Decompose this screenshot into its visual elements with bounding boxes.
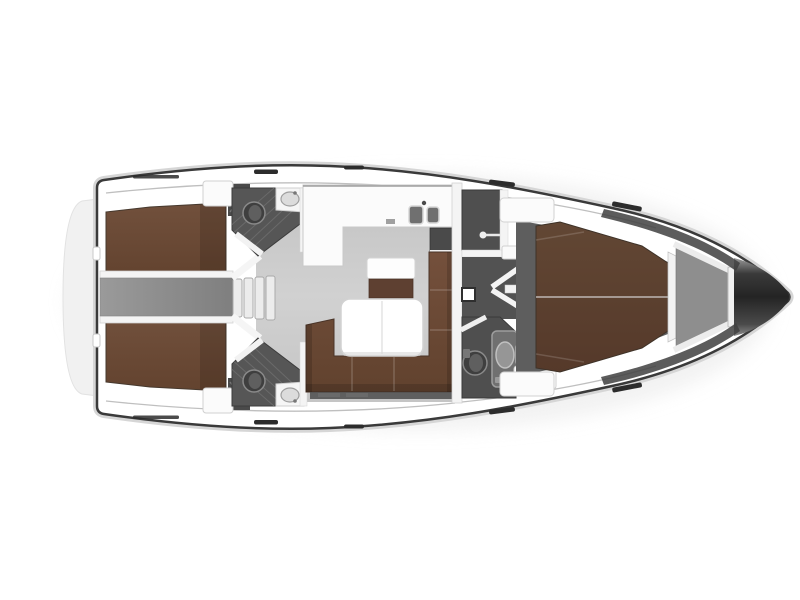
- toilet-seat: [469, 354, 483, 372]
- bench-front: [369, 279, 413, 298]
- side-shelf: [500, 372, 554, 396]
- toilet-seat: [249, 373, 262, 389]
- bow-nose: [734, 258, 789, 336]
- bench-top: [367, 258, 415, 279]
- cabinet: [203, 181, 233, 206]
- corridor-wall-bottom: [100, 316, 233, 323]
- berth-headboard: [200, 205, 226, 276]
- salon-table: [341, 299, 423, 356]
- cabinet: [203, 388, 233, 413]
- faucet-icon: [293, 191, 297, 195]
- faucet-icon: [293, 399, 297, 403]
- locker-mark: [318, 393, 340, 397]
- main-bulkhead: [452, 183, 462, 403]
- yacht-floor-plan: [0, 0, 800, 600]
- galley-sink: [409, 206, 423, 224]
- salon-bench: [367, 258, 415, 298]
- step: [266, 276, 275, 320]
- electrical-panel: [462, 288, 475, 301]
- step: [244, 278, 253, 318]
- toilet-tank: [463, 349, 470, 358]
- stove-mark: [386, 219, 395, 224]
- locker-mark: [346, 393, 368, 397]
- towel-rail-icon: [480, 232, 487, 239]
- settee-arm-shade: [306, 324, 312, 392]
- corridor-floor: [100, 278, 233, 316]
- settee-backrest-shade: [306, 384, 455, 392]
- galley-faucet-icon: [422, 201, 426, 205]
- step: [233, 279, 242, 317]
- bow-bulkhead: [668, 252, 676, 342]
- toilet-seat: [249, 205, 262, 221]
- table-shadow: [343, 352, 421, 356]
- swim-platform: [63, 199, 98, 396]
- head-room: [462, 190, 502, 250]
- galley-sink: [427, 207, 439, 223]
- sink-icon: [496, 342, 514, 368]
- berth-headboard: [200, 318, 226, 389]
- corridor-wall-top: [100, 271, 233, 278]
- side-shelf: [500, 198, 554, 222]
- yacht-floor-plan-canvas: [0, 0, 800, 600]
- head-wall-bottom: [462, 250, 508, 257]
- step: [255, 277, 264, 319]
